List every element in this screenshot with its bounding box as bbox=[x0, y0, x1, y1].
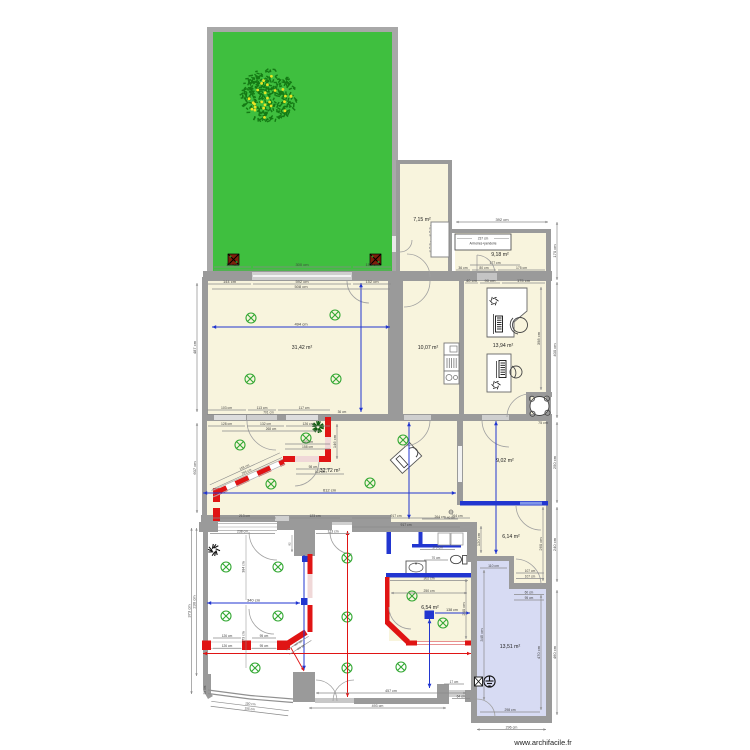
svg-text:460 cm: 460 cm bbox=[552, 645, 557, 659]
svg-text:470 cm: 470 cm bbox=[536, 645, 541, 659]
svg-text:170 cm: 170 cm bbox=[552, 244, 557, 258]
svg-text:230 cm: 230 cm bbox=[191, 595, 196, 609]
svg-text:487 cm: 487 cm bbox=[192, 340, 197, 354]
svg-text:213 cm: 213 cm bbox=[239, 514, 250, 518]
svg-text:158 cm: 158 cm bbox=[302, 445, 313, 449]
svg-text:268 cm: 268 cm bbox=[266, 427, 277, 431]
svg-text:300 cm: 300 cm bbox=[295, 262, 309, 267]
svg-text:173 cm: 173 cm bbox=[242, 631, 246, 642]
svg-text:152 cm: 152 cm bbox=[365, 262, 379, 267]
svg-text:107 cm: 107 cm bbox=[525, 574, 536, 578]
svg-text:240 cm: 240 cm bbox=[552, 537, 557, 551]
svg-text:6,54 m²: 6,54 m² bbox=[421, 605, 439, 611]
svg-text:80 cm: 80 cm bbox=[479, 266, 488, 270]
svg-text:302 cm: 302 cm bbox=[423, 576, 434, 580]
svg-text:340 cm: 340 cm bbox=[247, 598, 261, 603]
svg-text:152 cm: 152 cm bbox=[365, 279, 379, 284]
svg-text:238 cm: 238 cm bbox=[237, 529, 248, 533]
svg-text:126 cm: 126 cm bbox=[222, 644, 233, 648]
svg-text:95 cm: 95 cm bbox=[260, 644, 269, 648]
svg-text:92: 92 bbox=[288, 542, 292, 546]
svg-text:90 cm: 90 cm bbox=[485, 278, 497, 283]
svg-text:113 cm: 113 cm bbox=[257, 406, 268, 410]
svg-text:9,02 m²: 9,02 m² bbox=[496, 458, 514, 464]
svg-text:175 cm: 175 cm bbox=[516, 266, 527, 270]
svg-text:32,72 m²: 32,72 m² bbox=[320, 468, 341, 474]
svg-text:7,15 m²: 7,15 m² bbox=[413, 217, 431, 223]
svg-text:36 cm: 36 cm bbox=[458, 266, 467, 270]
svg-text:110 cm: 110 cm bbox=[488, 564, 499, 568]
svg-text:175 cm: 175 cm bbox=[517, 278, 531, 283]
svg-text:240 cm: 240 cm bbox=[461, 602, 466, 616]
svg-text:13,51 m²: 13,51 m² bbox=[500, 644, 521, 650]
svg-text:457 cm: 457 cm bbox=[385, 689, 397, 693]
svg-text:260 cm: 260 cm bbox=[538, 537, 543, 551]
svg-text:126 cm: 126 cm bbox=[222, 634, 233, 638]
svg-text:264 cm: 264 cm bbox=[434, 515, 445, 519]
svg-text:237 cm: 237 cm bbox=[478, 237, 489, 241]
svg-text:13,94 m²: 13,94 m² bbox=[493, 343, 514, 349]
svg-text:392 cm: 392 cm bbox=[495, 217, 509, 222]
svg-text:132 cm: 132 cm bbox=[260, 422, 271, 426]
svg-text:64 cm: 64 cm bbox=[457, 694, 466, 698]
svg-text:17 cm: 17 cm bbox=[450, 680, 459, 684]
svg-text:612 cm: 612 cm bbox=[323, 488, 337, 493]
svg-text:298 cm: 298 cm bbox=[504, 708, 515, 712]
svg-text:126 cm: 126 cm bbox=[302, 422, 313, 426]
svg-text:250 cm: 250 cm bbox=[423, 589, 434, 593]
svg-text:508 cm: 508 cm bbox=[294, 284, 308, 289]
svg-text:296 cm: 296 cm bbox=[506, 725, 518, 729]
svg-text:36 cm: 36 cm bbox=[338, 410, 347, 414]
svg-text:31,42 m²: 31,42 m² bbox=[292, 345, 313, 351]
svg-text:60 cm: 60 cm bbox=[525, 590, 534, 594]
svg-text:103 cm: 103 cm bbox=[221, 406, 232, 410]
svg-text:494 cm: 494 cm bbox=[294, 322, 308, 327]
svg-text:398 cm: 398 cm bbox=[536, 331, 541, 345]
svg-text:138 cm: 138 cm bbox=[446, 608, 458, 612]
svg-text:400 cm: 400 cm bbox=[552, 343, 557, 357]
svg-text:70 cm: 70 cm bbox=[432, 556, 441, 560]
svg-text:177 cm: 177 cm bbox=[489, 261, 500, 265]
svg-text:493 cm: 493 cm bbox=[372, 704, 384, 708]
svg-text:Armoires+penderie: Armoires+penderie bbox=[469, 242, 496, 246]
svg-text:607 cm: 607 cm bbox=[192, 461, 197, 475]
svg-text:123 cm: 123 cm bbox=[327, 529, 338, 533]
svg-text:120 cm: 120 cm bbox=[476, 532, 481, 546]
svg-text:146 cm: 146 cm bbox=[332, 434, 337, 448]
svg-text:9,18 m²: 9,18 m² bbox=[491, 252, 509, 258]
svg-text:917 cm: 917 cm bbox=[400, 523, 411, 527]
svg-text:144 cm: 144 cm bbox=[226, 262, 240, 267]
svg-text:75 cm: 75 cm bbox=[538, 421, 548, 425]
svg-text:128 cm: 128 cm bbox=[221, 422, 232, 426]
svg-text:107 cm: 107 cm bbox=[525, 569, 536, 573]
svg-text:170 cm: 170 cm bbox=[432, 545, 443, 549]
svg-text:144 cm: 144 cm bbox=[223, 279, 237, 284]
svg-text:40 cm: 40 cm bbox=[466, 278, 478, 283]
svg-text:373 cm: 373 cm bbox=[186, 604, 191, 618]
svg-text:123 cm: 123 cm bbox=[309, 514, 320, 518]
svg-text:www.archifacile.fr: www.archifacile.fr bbox=[513, 738, 572, 747]
svg-text:103 cm: 103 cm bbox=[302, 440, 313, 444]
svg-text:10,07 m²: 10,07 m² bbox=[418, 345, 439, 351]
svg-text:701 cm: 701 cm bbox=[263, 410, 274, 414]
svg-text:384 cm: 384 cm bbox=[242, 561, 246, 572]
svg-text:95 cm: 95 cm bbox=[260, 634, 269, 638]
svg-text:98 cm: 98 cm bbox=[309, 465, 318, 469]
svg-text:59 cm: 59 cm bbox=[203, 685, 207, 694]
svg-text:6,14 m²: 6,14 m² bbox=[502, 534, 520, 540]
svg-text:345 cm: 345 cm bbox=[479, 628, 484, 642]
svg-text:95 cm: 95 cm bbox=[525, 596, 534, 600]
svg-text:917 cm: 917 cm bbox=[390, 514, 401, 518]
svg-text:250 cm: 250 cm bbox=[552, 455, 557, 469]
svg-text:117 cm: 117 cm bbox=[299, 406, 310, 410]
